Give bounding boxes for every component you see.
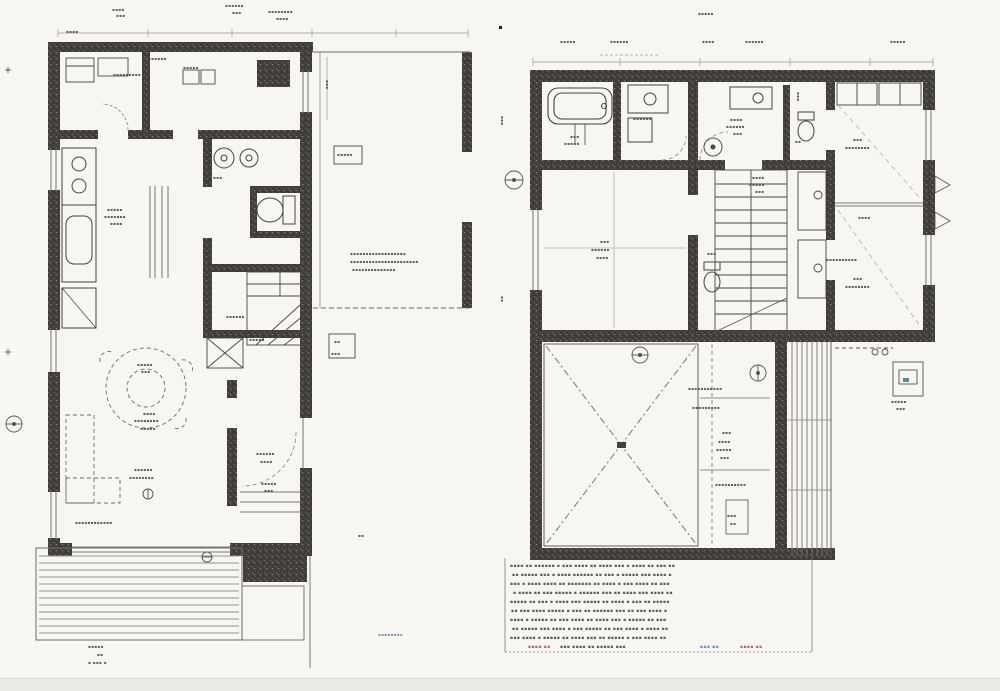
wc-upper (798, 112, 814, 141)
windows-2f (529, 110, 950, 290)
datum-box-right (835, 348, 923, 396)
scan-speck (499, 26, 502, 29)
entrance-closet (207, 338, 243, 368)
washstand (628, 85, 668, 142)
sliding-door-track (150, 186, 168, 278)
outer-walls-1f (48, 42, 472, 556)
plan-left (5, 26, 502, 668)
outer-walls-2f (530, 70, 935, 560)
stairs-2f (715, 170, 787, 332)
carport-bay (313, 52, 470, 358)
notes-block (505, 558, 812, 652)
scanned-floorplan-page: ▪▪▪▪▪▪▪▪▪▪▪▪▪▪▪▪▪▪▪▪▪▪▪▪▪▪▪▪▪▪▪▪▪▪▪▪▪▪▪▪… (0, 0, 1000, 691)
wood-deck (36, 548, 310, 668)
entrance-hall (240, 432, 303, 512)
dining-table-dashed (100, 348, 193, 429)
void-room-x (544, 344, 698, 546)
lower-middle-column (700, 344, 770, 546)
interior-walls-2f (530, 70, 835, 330)
wc-lower (704, 262, 720, 292)
washroom-basins (214, 148, 258, 168)
balcony-slats (788, 342, 832, 556)
utility-fixtures (66, 58, 215, 130)
closets-2f (798, 83, 921, 298)
plan-right (505, 55, 950, 652)
bedroom-partition (835, 203, 923, 206)
datum-markers-left (5, 67, 212, 562)
kitchen-counter (62, 148, 96, 328)
windows-1f (47, 72, 313, 557)
interior-walls-1f (60, 52, 310, 506)
toilet-1f (257, 196, 295, 224)
dimension-line-top-right (533, 55, 933, 66)
tatami-room (544, 172, 686, 328)
bathtub (548, 88, 612, 145)
sofa-dashed (66, 415, 120, 503)
dimension-line-top-left (58, 29, 468, 37)
floorplan-drawing (0, 0, 1000, 691)
hall-fixtures (662, 87, 772, 160)
scanner-edge-strip (0, 678, 1000, 691)
bedroom-dashes (838, 105, 920, 326)
